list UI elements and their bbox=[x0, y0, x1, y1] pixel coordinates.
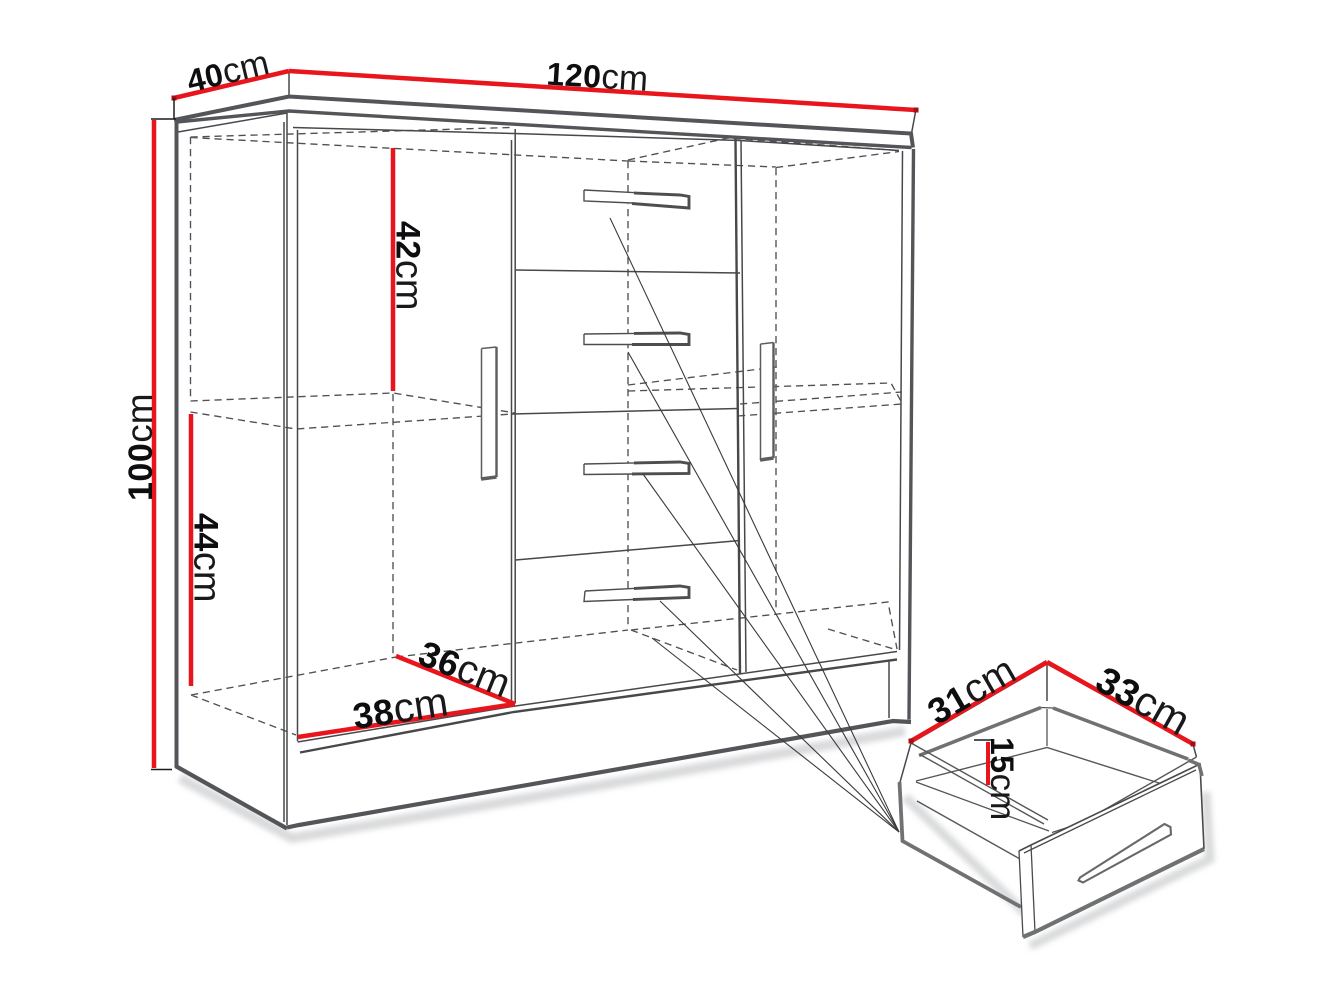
svg-text:44cm: 44cm bbox=[186, 513, 228, 602]
svg-text:100cm: 100cm bbox=[119, 393, 160, 501]
svg-text:15cm: 15cm bbox=[983, 737, 1022, 820]
svg-text:42cm: 42cm bbox=[387, 221, 429, 310]
svg-text:38cm: 38cm bbox=[350, 678, 451, 738]
svg-text:33cm: 33cm bbox=[1089, 655, 1199, 745]
svg-text:40cm: 40cm bbox=[183, 43, 273, 100]
svg-text:120cm: 120cm bbox=[545, 54, 649, 99]
